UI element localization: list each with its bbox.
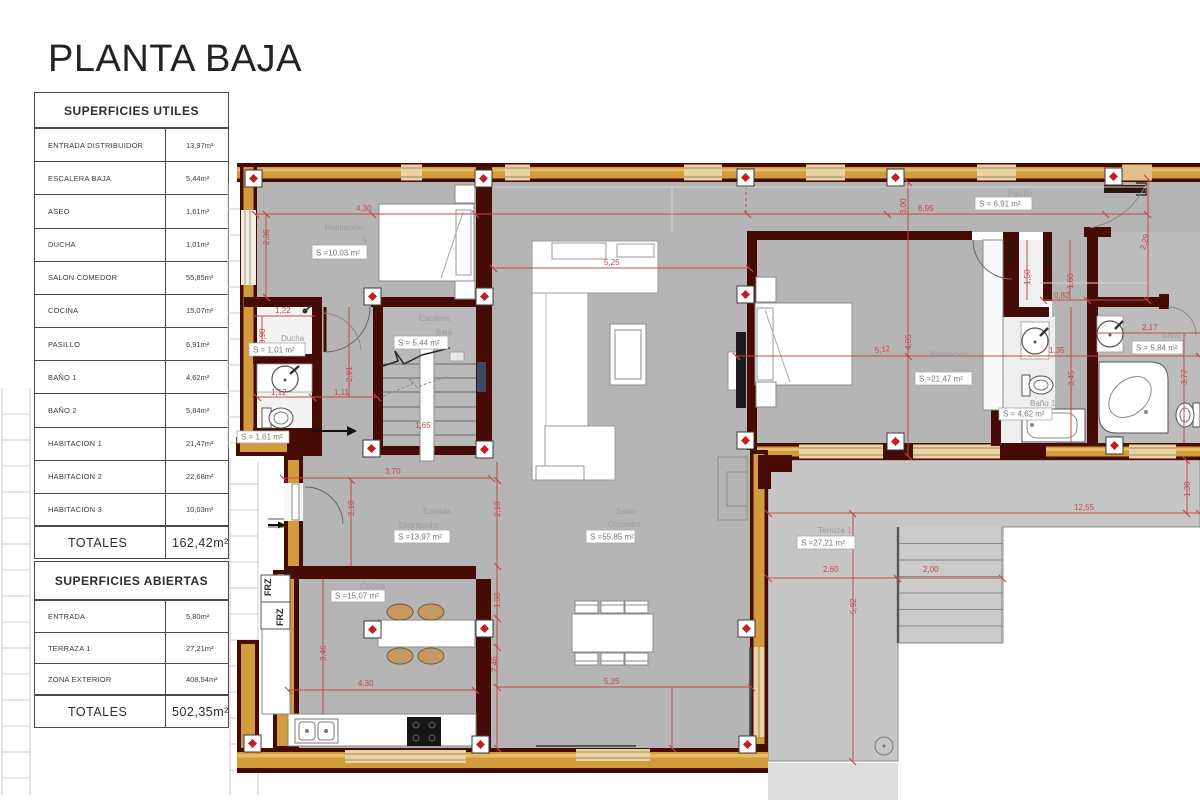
- svg-text:FRZ: FRZ: [275, 608, 285, 626]
- svg-text:Baño 2: Baño 2: [1162, 331, 1188, 340]
- svg-text:FRZ: FRZ: [263, 578, 273, 596]
- svg-text:S = 5,44 m²: S = 5,44 m²: [398, 339, 440, 348]
- svg-text:S =21,47 m²: S =21,47 m²: [919, 375, 963, 384]
- svg-text:Terraza 1: Terraza 1: [818, 526, 852, 535]
- svg-text:1,30: 1,30: [493, 592, 502, 608]
- svg-text:2,36: 2,36: [262, 229, 271, 245]
- svg-text:S = 4,62 m²: S = 4,62 m²: [1003, 410, 1045, 419]
- svg-text:2,10: 2,10: [347, 500, 356, 516]
- svg-text:2,17: 2,17: [1142, 323, 1158, 332]
- svg-text:3,00: 3,00: [899, 198, 908, 214]
- svg-text:1,11: 1,11: [334, 388, 350, 397]
- svg-text:1,50: 1,50: [1023, 269, 1032, 285]
- svg-text:2,00: 2,00: [923, 565, 939, 574]
- svg-text:5,25: 5,25: [604, 677, 620, 686]
- svg-text:S =27,21 m²: S =27,21 m²: [801, 539, 845, 548]
- svg-text:S = 5,84 m²: S = 5,84 m²: [1136, 344, 1178, 353]
- svg-text:S = 1,01 m²: S = 1,01 m²: [253, 346, 295, 355]
- svg-text:S = 1,61 m²: S = 1,61 m²: [241, 433, 283, 442]
- svg-text:Comedor: Comedor: [608, 520, 641, 529]
- svg-text:1,12: 1,12: [271, 388, 287, 397]
- svg-text:12,55: 12,55: [1074, 503, 1095, 512]
- svg-text:3,46: 3,46: [319, 645, 328, 661]
- svg-text:Distribuidor: Distribuidor: [399, 521, 440, 530]
- svg-text:2,91: 2,91: [345, 366, 354, 382]
- svg-text:S =15,07 m²: S =15,07 m²: [335, 592, 379, 601]
- svg-text:0,82: 0,82: [1054, 291, 1070, 300]
- svg-text:Baño 1: Baño 1: [1030, 399, 1056, 408]
- svg-text:3,45: 3,45: [1067, 370, 1076, 386]
- svg-text:S =55,85 m²: S =55,85 m²: [590, 533, 634, 542]
- svg-text:Escalera: Escalera: [419, 314, 451, 323]
- svg-text:3,70: 3,70: [385, 467, 401, 476]
- svg-text:1,35: 1,35: [1049, 346, 1065, 355]
- svg-text:S = 6,91 m²: S = 6,91 m²: [979, 200, 1021, 209]
- svg-text:S =10,03 m²: S =10,03 m²: [316, 249, 360, 258]
- svg-text:0,90: 0,90: [258, 328, 267, 344]
- svg-text:5,25: 5,25: [604, 258, 620, 267]
- svg-text:Entrada: Entrada: [423, 507, 452, 516]
- svg-text:Habitación: Habitación: [930, 350, 968, 359]
- svg-text:2,60: 2,60: [823, 565, 839, 574]
- svg-text:4,05: 4,05: [904, 334, 913, 350]
- svg-text:1,65: 1,65: [415, 421, 431, 430]
- svg-text:2,10: 2,10: [493, 501, 502, 517]
- svg-text:1,30: 1,30: [1183, 481, 1192, 497]
- svg-text:S =13,97 m²: S =13,97 m²: [398, 533, 442, 542]
- svg-text:6,95: 6,95: [918, 204, 934, 213]
- svg-text:Salon: Salon: [616, 507, 636, 516]
- svg-text:4,30: 4,30: [356, 204, 372, 213]
- svg-text:5,92: 5,92: [849, 598, 858, 614]
- svg-text:Habitación: Habitación: [325, 223, 363, 232]
- svg-text:3,77: 3,77: [1180, 369, 1189, 385]
- svg-text:1,22: 1,22: [275, 306, 291, 315]
- svg-text:Ducha: Ducha: [281, 334, 305, 343]
- svg-text:4,30: 4,30: [358, 679, 374, 688]
- svg-text:3: 3: [362, 236, 367, 245]
- svg-text:2,46: 2,46: [490, 656, 499, 672]
- svg-text:1,60: 1,60: [1066, 273, 1075, 289]
